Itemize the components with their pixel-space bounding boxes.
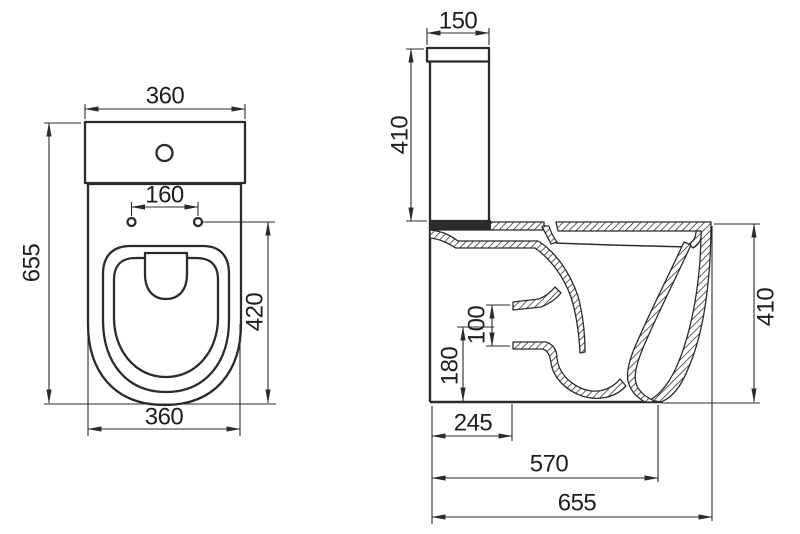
dim-overall-depth-label: 655 — [19, 244, 46, 283]
side-view: 150 410 100 180 245 570 — [387, 8, 780, 525]
tank-joint-section — [429, 220, 491, 230]
dim-outlet-diameter-label: 100 — [464, 306, 491, 345]
dim-rim-height-label: 410 — [753, 288, 780, 327]
dimension-lid-depth: 150 — [427, 8, 489, 46]
tank-body-outline — [430, 61, 489, 221]
outlet-pipe-bottom-trap-section — [513, 342, 626, 398]
dim-seat-length-label: 420 — [242, 293, 269, 332]
dim-bolt-spacing-label: 160 — [145, 182, 184, 209]
dim-overall-length-label: 655 — [558, 490, 597, 517]
outlet-pipe-top-section — [513, 287, 561, 310]
seat-gap-section — [542, 226, 557, 244]
dimension-tank-width: 360 — [85, 83, 245, 120]
dimension-outlet-diameter: 100 — [464, 305, 511, 346]
dim-tank-height-label: 410 — [387, 116, 414, 155]
top-view: 360 160 655 420 360 — [19, 83, 277, 437]
tank-lid-outline — [427, 48, 489, 62]
dimension-outlet-setout: 245 — [432, 404, 512, 524]
dim-bowl-projection-label: 570 — [530, 451, 569, 478]
rim-underside-line — [556, 243, 690, 247]
dim-lid-depth-label: 150 — [439, 8, 478, 35]
dim-outlet-height-label: 180 — [437, 347, 464, 386]
dim-outlet-setout-label: 245 — [454, 410, 493, 437]
bolt-hole-left — [128, 218, 136, 226]
shelf-rear-wall-section — [430, 230, 585, 353]
technical-drawing: 360 160 655 420 360 — [0, 0, 800, 534]
bolt-hole-right — [194, 218, 202, 226]
flush-inlet-outline — [145, 253, 187, 299]
dimension-tank-height: 410 — [387, 49, 428, 221]
drawing-canvas: 360 160 655 420 360 — [0, 0, 800, 534]
dim-tank-width-label: 360 — [146, 83, 185, 110]
dim-base-width-label: 360 — [145, 404, 184, 431]
flush-button-icon — [157, 145, 173, 161]
